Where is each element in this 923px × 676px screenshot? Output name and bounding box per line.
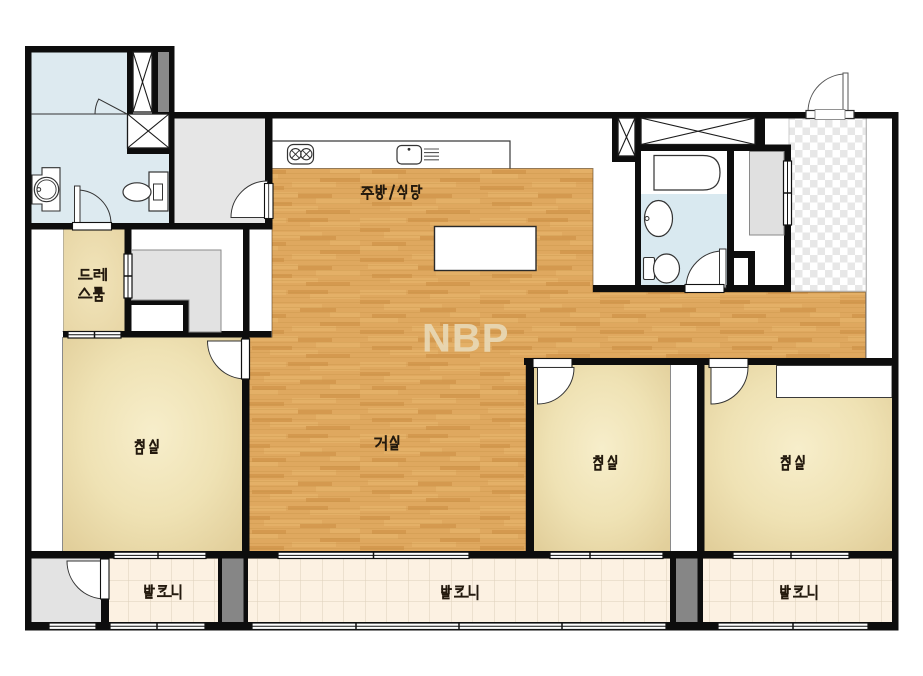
svg-text:NBP: NBP xyxy=(422,317,509,361)
